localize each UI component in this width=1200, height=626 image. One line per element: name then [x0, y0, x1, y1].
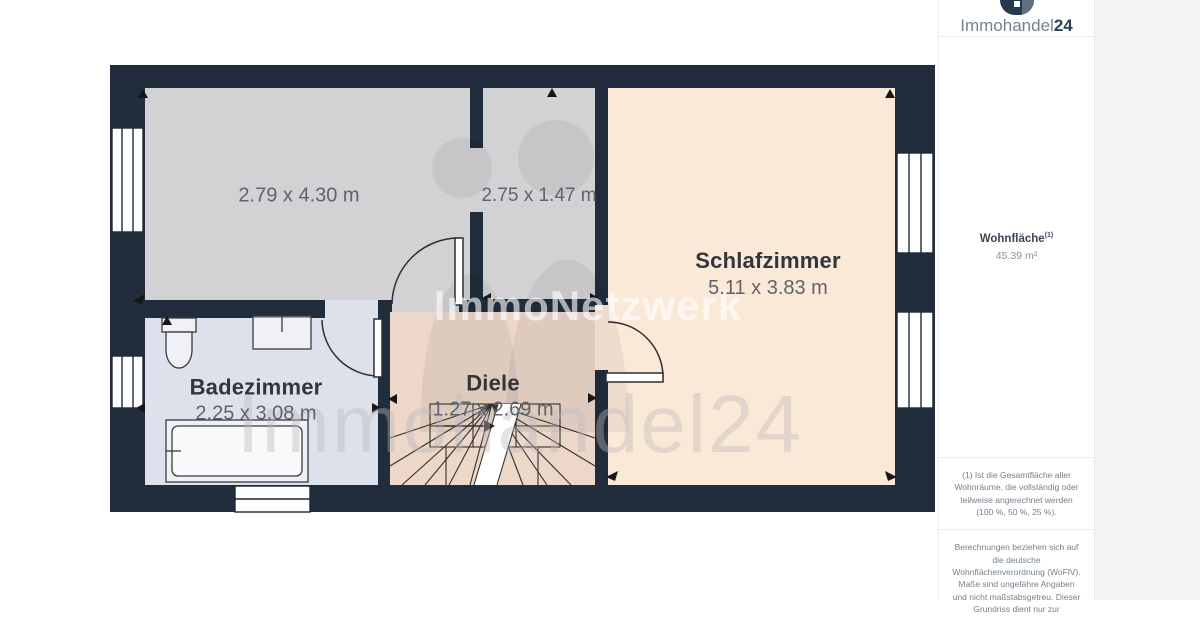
- immohandel-logo-icon: [1000, 0, 1034, 15]
- living-area-value: 45.39 m²: [996, 250, 1037, 262]
- living-area-section: Wohnfläche(1) 45.39 m²: [939, 37, 1094, 458]
- living-area-title: Wohnfläche(1): [980, 232, 1054, 245]
- footnote-area-definition: (1) Ist die Gesamtfläche aller Wohnräume…: [939, 458, 1094, 530]
- footnote-marker: (1): [1045, 232, 1054, 239]
- brand-name: Immohandel24: [960, 16, 1072, 36]
- page-background: [1095, 0, 1200, 600]
- brand-name-light: Immohandel: [960, 16, 1054, 35]
- brand-name-bold: 24: [1054, 16, 1073, 35]
- floorplan-svg: [0, 0, 938, 600]
- info-sidebar: Immohandel24 Wohnfläche(1) 45.39 m² (1) …: [938, 0, 1095, 600]
- footnote-legal: Berechnungen beziehen sich auf die deuts…: [939, 530, 1094, 626]
- floorplan-canvas: Immohandel24 ImmoNetzwerk 2.79 x 4.30 m …: [0, 0, 938, 600]
- brand-header: Immohandel24: [939, 0, 1094, 37]
